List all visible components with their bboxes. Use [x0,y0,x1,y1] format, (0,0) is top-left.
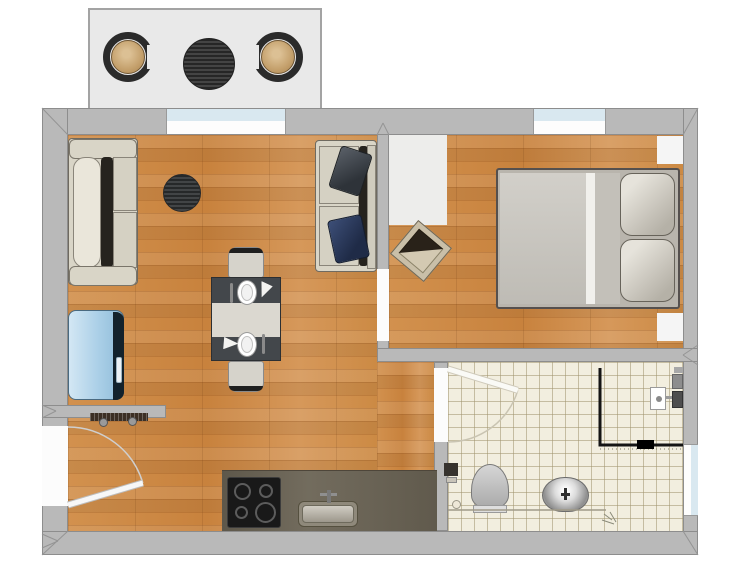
sofa-armrest [69,266,137,286]
bed-pillow [620,239,675,302]
bathroom-door-opening[interactable] [434,368,448,442]
sofa-back-cushion [73,157,101,268]
floor-drain [452,500,461,509]
shower-mount [674,367,683,373]
kitchen-sink[interactable] [298,501,358,527]
radiator-valve [99,418,108,427]
radiator-valve [128,417,137,426]
wall-south [42,531,698,555]
kitchen-faucet-stem [327,490,331,503]
chair-back-edge [229,248,263,253]
bed-duvet [595,173,620,304]
bed-sheet-band [586,173,595,304]
wall-living-bedroom [377,135,389,270]
chest-handle [116,357,122,383]
dining-chair-south[interactable] [228,361,264,392]
burner [255,502,276,523]
bedroom-doorway-opening[interactable] [377,269,389,341]
shower-head-unit [672,391,683,408]
sofa-seat-cushion [113,212,137,268]
shower-head-unit [672,374,683,389]
window-glass [167,109,285,121]
plate-inner [241,284,253,301]
living-room-window[interactable] [166,109,286,134]
bed-pillow [620,173,675,236]
entrance-door-opening[interactable] [42,426,68,506]
wicker-chair-opening [147,45,159,69]
light-blue-chest[interactable] [68,310,124,400]
balcony-round-table[interactable] [183,38,235,90]
bed-duvet [500,173,586,304]
burner [259,484,273,498]
toilet-paper-holder[interactable] [444,463,458,476]
cutlery [262,334,265,354]
bathroom-window[interactable] [684,444,698,516]
nightstand[interactable] [657,313,683,341]
basin-faucet [561,493,570,496]
chair-back-edge [229,386,263,391]
toilet-cistern [473,505,507,513]
cutlery [230,283,233,303]
shower-knob [656,396,662,402]
toilet-paper-roll [446,477,457,483]
burner [234,483,251,500]
window-glass [691,445,698,515]
dining-chair-north[interactable] [228,247,264,278]
nightstand[interactable] [657,136,683,164]
chair-cushion [111,40,145,74]
shower-control-panel[interactable] [650,387,666,410]
plate-inner [241,336,253,353]
floor-plan-canvas [0,0,753,576]
window-glass [534,109,605,121]
toilet[interactable] [471,464,509,509]
sofa-seat-cushion [113,157,137,211]
burner [235,506,248,519]
plate [237,280,257,305]
cooktop[interactable] [227,477,281,528]
sofa-west[interactable] [68,138,138,285]
sofa-east[interactable] [315,140,377,272]
wicker-chair-opening [247,45,259,69]
chest-dark-edge [113,312,124,400]
bedroom-white-rug[interactable] [389,135,447,225]
dark-round-rug[interactable] [163,174,201,212]
bedroom-window[interactable] [533,109,606,134]
sink-basin [302,505,354,523]
wall-bedroom-bathroom [377,348,698,362]
sofa-armrest [69,139,137,159]
double-bed[interactable] [496,168,680,309]
sofa-shadow-crease [101,157,113,268]
plate [237,332,257,357]
chair-cushion [261,40,295,74]
